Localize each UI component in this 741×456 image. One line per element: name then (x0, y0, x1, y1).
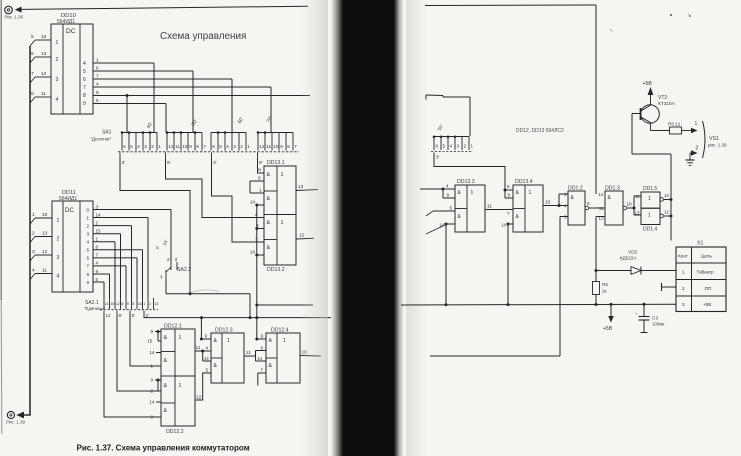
svg-text:2: 2 (57, 237, 60, 243)
svg-text:6: 6 (123, 144, 126, 149)
svg-text:КД522А: КД522А (620, 256, 637, 261)
svg-text:КТ315А: КТ315А (658, 101, 676, 107)
svg-text:3: 3 (457, 144, 460, 149)
svg-text:5: 5 (83, 69, 86, 75)
svg-text:&: & (164, 335, 168, 341)
svg-text:DD13.1: DD13.1 (267, 160, 285, 166)
svg-text:DD1.5: DD1.5 (643, 186, 657, 192)
svg-text:2: 2 (87, 223, 90, 228)
svg-text:DD13.3: DD13.3 (457, 179, 475, 185)
svg-text:5: 5 (443, 144, 446, 149)
svg-text:2: 2 (464, 144, 467, 149)
svg-text:DD13.2: DD13.2 (267, 267, 285, 273)
svg-text:9: 9 (189, 144, 192, 149)
svg-text:8′: 8′ (119, 313, 123, 318)
svg-text:4: 4 (450, 144, 453, 149)
svg-text:6: 6 (83, 77, 86, 83)
svg-text:1: 1 (695, 121, 698, 127)
svg-text:1: 1 (281, 220, 284, 226)
svg-text:R5: R5 (602, 282, 608, 287)
svg-text:1: 1 (471, 190, 474, 196)
svg-text:564ИД1: 564ИД1 (59, 196, 77, 202)
svg-text:DD12.4: DD12.4 (271, 328, 289, 334)
svg-text:9: 9 (150, 415, 153, 420)
svg-text:11: 11 (105, 302, 109, 306)
svg-text:DC: DC (66, 28, 76, 35)
svg-text:&: & (269, 363, 273, 369)
svg-text:1: 1 (471, 144, 474, 149)
svg-text:2: 2 (696, 146, 699, 152)
svg-text:DD1.2: DD1.2 (568, 186, 583, 192)
svg-text:7: 7 (83, 85, 86, 91)
svg-text:6: 6 (87, 256, 90, 261)
svg-text:Рис. 1.36: Рис. 1.36 (5, 14, 24, 19)
svg-text:6: 6 (96, 65, 99, 71)
svg-text:2: 2 (682, 286, 685, 291)
svg-text:9′: 9′ (167, 160, 171, 166)
svg-text:DD12.1: DD12.1 (164, 324, 182, 330)
svg-text:Рис. 1.39: Рис. 1.39 (6, 419, 26, 424)
svg-text:9: 9 (447, 193, 450, 198)
svg-text:&: & (164, 358, 168, 364)
svg-text:3: 3 (144, 144, 147, 149)
svg-text:1: 1 (56, 40, 59, 46)
svg-text:9: 9 (150, 378, 153, 383)
svg-text:12: 12 (41, 71, 47, 77)
svg-text:10: 10 (41, 34, 47, 40)
svg-text:3: 3 (96, 204, 99, 209)
svg-text:14: 14 (250, 200, 256, 205)
svg-text:5: 5 (450, 206, 453, 211)
svg-text:7: 7 (260, 368, 263, 373)
svg-text:14: 14 (250, 250, 256, 255)
svg-text:0: 0 (87, 207, 90, 212)
svg-text:1: 1 (247, 144, 250, 149)
svg-text:10: 10 (42, 212, 48, 218)
svg-text:7: 7 (87, 264, 90, 269)
svg-text:1: 1 (259, 188, 262, 193)
svg-text:1: 1 (648, 213, 651, 219)
svg-text:15: 15 (96, 229, 102, 234)
svg-text:Конт: Конт (678, 254, 689, 259)
svg-text:&: & (214, 363, 218, 369)
svg-text:11: 11 (266, 144, 271, 149)
svg-text:4: 4 (32, 268, 35, 274)
svg-text:4: 4 (137, 144, 140, 149)
svg-text:12: 12 (196, 395, 202, 401)
svg-text:VS1: VS1 (709, 136, 719, 142)
svg-text:10: 10 (664, 193, 669, 198)
svg-text:564ИД1: 564ИД1 (57, 19, 75, 25)
svg-text:11: 11 (175, 144, 180, 149)
svg-text:4: 4 (446, 184, 449, 189)
svg-text:8: 8 (196, 144, 199, 149)
svg-text:Цепь: Цепь (701, 254, 712, 259)
svg-text:10: 10 (182, 144, 188, 149)
svg-text:1: 1 (648, 196, 651, 202)
svg-text:1: 1 (57, 218, 60, 224)
svg-text:&: & (214, 338, 218, 344)
svg-text:13: 13 (42, 231, 48, 237)
svg-text:8: 8 (31, 91, 34, 97)
svg-text:&: & (164, 383, 168, 389)
svg-text:3: 3 (175, 257, 178, 262)
svg-text:1: 1 (682, 270, 685, 275)
svg-text:1: 1 (96, 237, 99, 242)
svg-text:DD12.2: DD12.2 (166, 429, 184, 435)
svg-text:4: 4 (83, 61, 86, 67)
svg-text:9: 9 (260, 334, 263, 339)
svg-text:14: 14 (501, 223, 506, 228)
svg-text:9: 9 (258, 176, 261, 181)
svg-text:5: 5 (132, 302, 134, 306)
svg-text:1: 1 (283, 338, 286, 344)
svg-text:&: & (267, 245, 271, 251)
svg-text:SA2.2: SA2.2 (177, 267, 191, 273)
svg-text:14: 14 (149, 400, 155, 405)
svg-text:13: 13 (154, 302, 158, 306)
svg-text:Табакср: Табакср (697, 270, 715, 275)
svg-text:5: 5 (130, 144, 133, 149)
svg-text:3: 3 (57, 255, 60, 261)
svg-text:2: 2 (56, 57, 59, 63)
svg-text:10: 10 (273, 144, 279, 149)
svg-text:11: 11 (246, 350, 251, 356)
svg-text:12: 12 (598, 192, 604, 197)
svg-text:ОП: ОП (705, 286, 712, 291)
svg-text:1: 1 (96, 57, 99, 63)
svg-text:1: 1 (143, 302, 145, 306)
svg-text:+5В: +5В (643, 81, 653, 87)
svg-text:3: 3 (682, 302, 685, 307)
svg-text:12: 12 (259, 144, 265, 149)
svg-text:Схема управления: Схема управления (160, 31, 246, 42)
svg-text:6: 6 (31, 51, 34, 57)
svg-text:7: 7 (96, 253, 99, 258)
svg-text:3: 3 (564, 192, 567, 197)
svg-text:+5В: +5В (703, 302, 711, 307)
svg-text:1: 1 (150, 364, 153, 369)
svg-text:8: 8 (83, 93, 86, 99)
svg-text:R6 12: R6 12 (668, 122, 681, 127)
svg-text:Рис. 1.37. Схема управления ко: Рис. 1.37. Схема управления коммутатором (77, 444, 250, 453)
svg-text:85: 85 (257, 168, 261, 172)
svg-text:1: 1 (529, 190, 532, 196)
svg-text:4: 4 (57, 274, 60, 280)
svg-text:6: 6 (587, 201, 590, 206)
svg-text:11: 11 (599, 206, 604, 211)
svg-text:100мк: 100мк (652, 322, 664, 327)
svg-text:3: 3 (32, 249, 35, 255)
svg-text:5: 5 (206, 368, 209, 373)
svg-text:9′: 9′ (259, 160, 263, 166)
svg-text:9: 9 (150, 329, 153, 334)
svg-text:6: 6 (212, 144, 215, 149)
svg-text:3: 3 (233, 144, 236, 149)
svg-text:2: 2 (151, 144, 154, 149)
svg-text:DD1.4: DD1.4 (643, 227, 657, 233)
svg-text:1: 1 (32, 212, 35, 218)
svg-text:4: 4 (564, 204, 567, 209)
svg-text:9: 9 (96, 269, 99, 274)
svg-text:12: 12 (116, 302, 120, 306)
svg-text:+5В: +5В (603, 326, 613, 332)
svg-text:10: 10 (627, 202, 633, 207)
svg-text:11: 11 (41, 91, 46, 97)
svg-text:13: 13 (41, 51, 47, 57)
svg-text:7: 7 (294, 144, 297, 149)
svg-text:2: 2 (150, 389, 153, 394)
svg-text:11′: 11′ (106, 313, 112, 318)
svg-text:13: 13 (635, 211, 640, 216)
svg-text:2: 2 (167, 257, 170, 262)
svg-text:6: 6 (507, 184, 510, 189)
svg-text:16: 16 (138, 302, 142, 306)
svg-text:3′: 3′ (213, 160, 217, 166)
svg-text:DD12.3: DD12.3 (215, 328, 233, 334)
svg-text:14: 14 (204, 356, 209, 361)
svg-text:9: 9 (205, 334, 208, 339)
svg-text:11: 11 (42, 268, 47, 274)
svg-text:1: 1 (227, 338, 230, 344)
svg-text:6: 6 (96, 245, 99, 250)
svg-text:14: 14 (257, 356, 262, 361)
svg-text:5: 5 (31, 34, 34, 40)
svg-text:11: 11 (635, 194, 640, 199)
svg-text:6: 6 (436, 144, 439, 149)
svg-text:5: 5 (219, 144, 222, 149)
svg-text:2: 2 (240, 144, 243, 149)
svg-text:8: 8 (87, 272, 90, 277)
svg-text:8: 8 (121, 302, 123, 306)
svg-text:&: & (267, 172, 271, 178)
svg-text:7: 7 (203, 144, 206, 149)
svg-text:8: 8 (287, 144, 290, 149)
svg-text:&: & (164, 408, 168, 414)
svg-text:12: 12 (42, 249, 48, 255)
svg-text:5′: 5′ (132, 313, 136, 318)
svg-text:9: 9 (127, 302, 129, 306)
svg-text:1: 1 (281, 172, 284, 178)
svg-text:5: 5 (96, 98, 99, 104)
svg-text:11: 11 (196, 345, 201, 351)
svg-text:9: 9 (83, 101, 86, 107)
svg-text:"Десятки": "Десятки" (90, 137, 112, 143)
svg-text:DC: DC (65, 207, 74, 214)
svg-text:6: 6 (260, 345, 263, 350)
svg-text:2: 2 (149, 302, 151, 306)
svg-text:2: 2 (96, 220, 99, 225)
svg-text:X1: X1 (697, 241, 703, 247)
svg-text:DD13.4: DD13.4 (515, 179, 533, 185)
svg-text:7: 7 (96, 73, 99, 79)
svg-text:A: A (269, 338, 273, 344)
svg-text:3: 3 (87, 232, 90, 237)
svg-text:5: 5 (87, 248, 90, 253)
svg-text:1: 1 (179, 383, 182, 389)
svg-text:&: & (267, 196, 271, 202)
svg-text:15: 15 (147, 339, 153, 344)
svg-text:SA1: SA1 (102, 130, 112, 136)
svg-text:9: 9 (508, 193, 511, 198)
svg-text:4: 4 (56, 97, 59, 103)
svg-text:14: 14 (149, 350, 155, 355)
svg-text:&: & (267, 220, 271, 226)
svg-text:3′: 3′ (122, 160, 126, 166)
svg-text:VT2: VT2 (658, 95, 667, 101)
svg-text:1: 1 (158, 144, 161, 149)
svg-text:7: 7 (507, 211, 510, 216)
svg-text:1: 1 (87, 215, 90, 220)
svg-text:2: 2 (32, 231, 35, 237)
svg-text:ъ: ъ (688, 13, 691, 19)
svg-text:3′: 3′ (436, 155, 440, 160)
svg-text:5: 5 (96, 277, 99, 282)
svg-text:11: 11 (487, 204, 492, 210)
svg-text:7: 7 (31, 71, 34, 77)
svg-text:рис. 1.39: рис. 1.39 (708, 143, 727, 148)
svg-text:12: 12 (664, 210, 669, 215)
svg-text:9: 9 (96, 90, 99, 96)
svg-text:4: 4 (96, 81, 99, 87)
svg-text:1: 1 (179, 335, 182, 341)
svg-text:4: 4 (226, 144, 229, 149)
svg-text:10: 10 (110, 302, 114, 306)
svg-text:DD1.3: DD1.3 (605, 186, 620, 192)
svg-text:4: 4 (206, 346, 209, 351)
svg-text:4: 4 (87, 240, 90, 245)
svg-text:4: 4 (96, 261, 99, 266)
svg-text:9: 9 (280, 144, 283, 149)
svg-text:10: 10 (545, 200, 551, 206)
svg-text:9: 9 (87, 280, 90, 285)
svg-text:"Единицы": "Единицы" (84, 306, 106, 311)
svg-text:DD12, DD13 564ЛС2: DD12, DD13 564ЛС2 (516, 128, 564, 134)
svg-text:12: 12 (168, 144, 174, 149)
svg-text:14: 14 (96, 212, 102, 217)
svg-text:3: 3 (56, 77, 59, 83)
